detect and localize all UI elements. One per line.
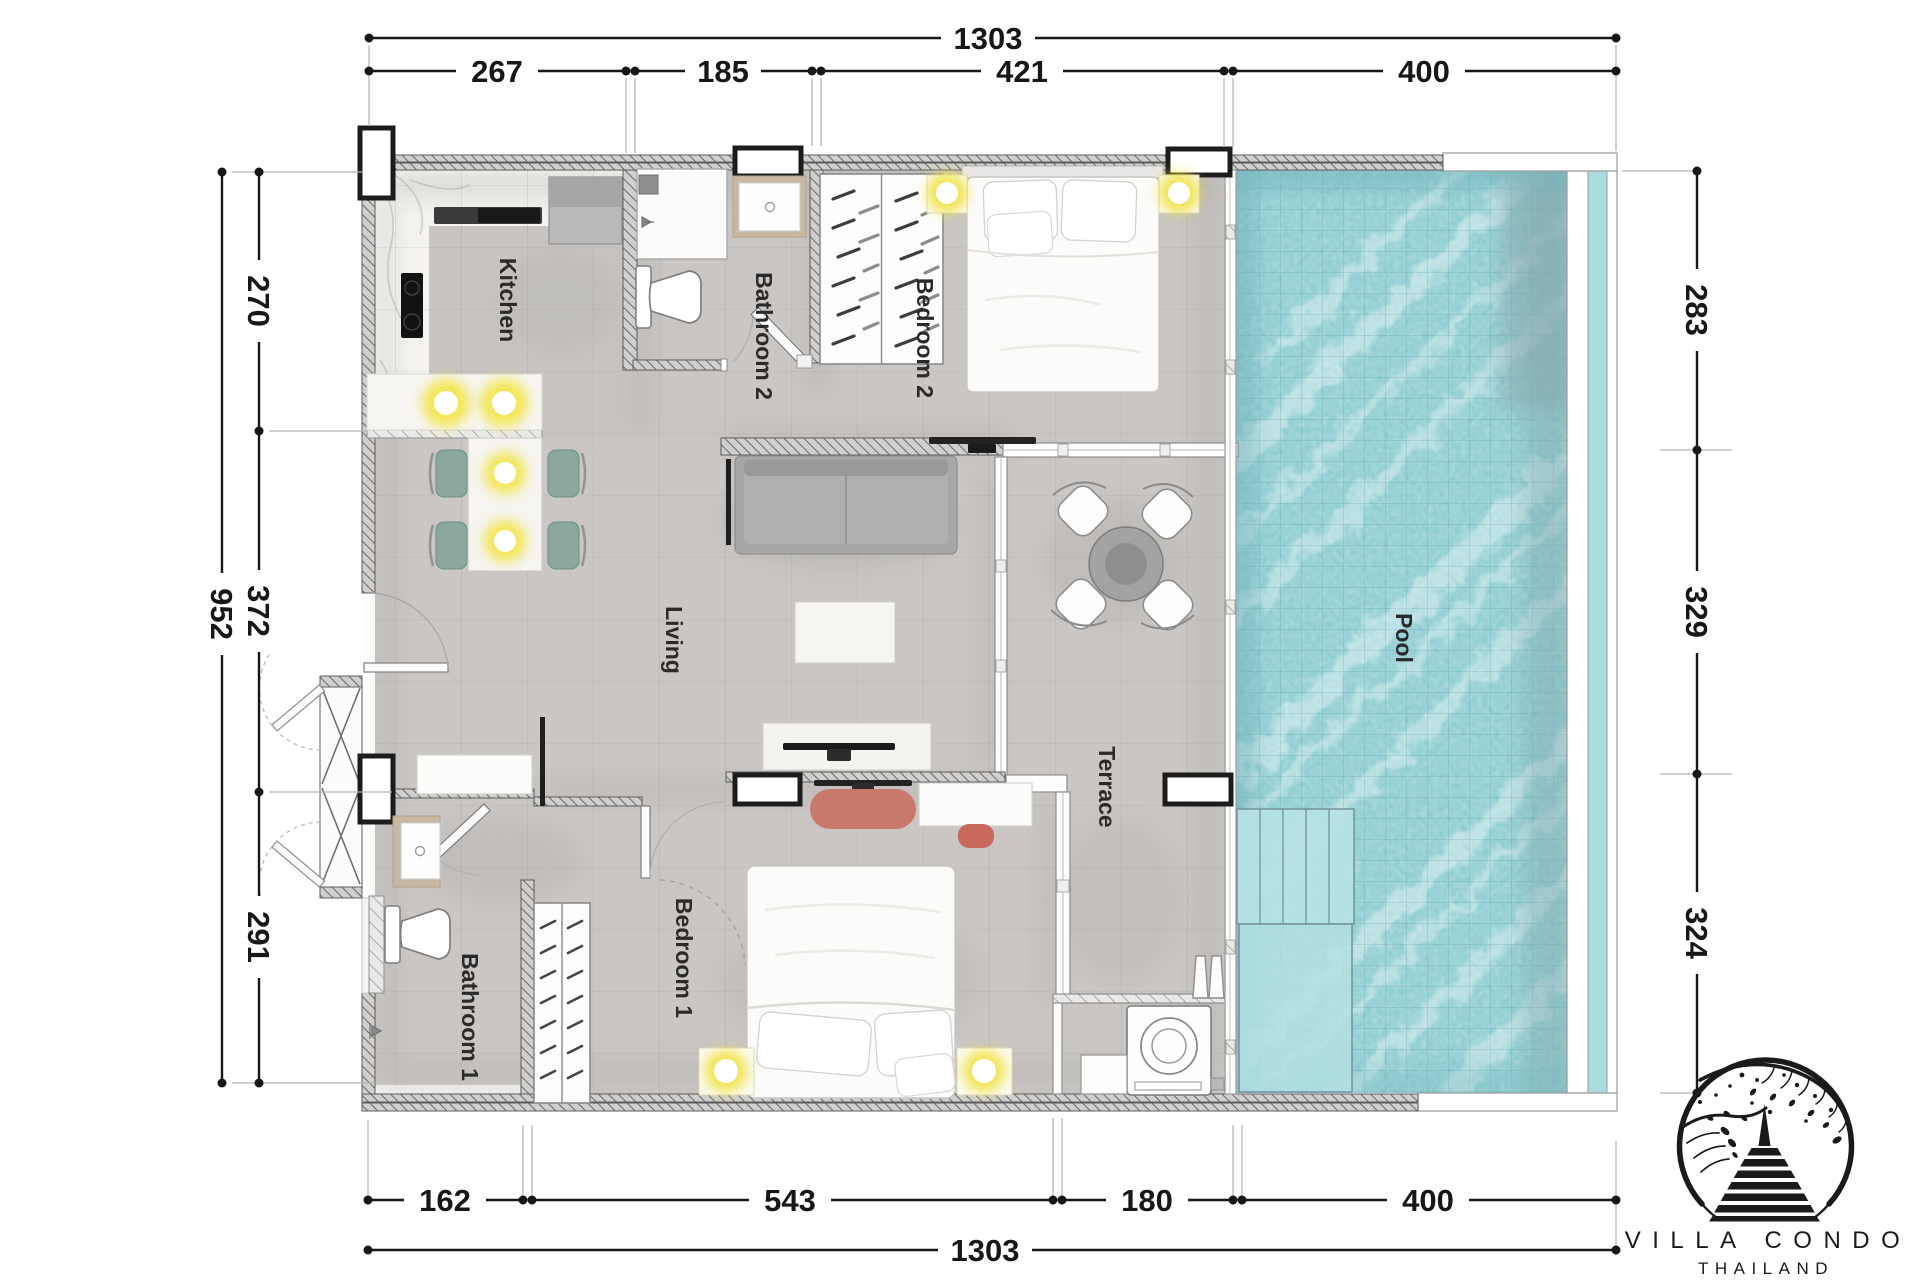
svg-text:270: 270 — [241, 275, 276, 327]
svg-text:1303: 1303 — [954, 21, 1023, 56]
svg-text:Bedroom 2: Bedroom 2 — [912, 278, 938, 398]
svg-text:283: 283 — [1679, 284, 1714, 336]
svg-text:Terrace: Terrace — [1094, 746, 1120, 827]
svg-text:162: 162 — [419, 1183, 471, 1218]
svg-text:543: 543 — [764, 1183, 816, 1218]
svg-text:Pool: Pool — [1391, 613, 1417, 663]
svg-text:329: 329 — [1679, 586, 1714, 638]
svg-text:VILLA CONDO: VILLA CONDO — [1625, 1227, 1912, 1254]
svg-text:291: 291 — [241, 911, 276, 963]
svg-text:Bathroom 1: Bathroom 1 — [457, 953, 483, 1081]
svg-text:Living: Living — [661, 606, 687, 674]
svg-text:952: 952 — [204, 588, 239, 640]
svg-text:324: 324 — [1679, 907, 1714, 959]
svg-text:Bedroom 1: Bedroom 1 — [671, 898, 697, 1018]
svg-text:400: 400 — [1402, 1183, 1454, 1218]
svg-text:Kitchen: Kitchen — [495, 258, 521, 342]
svg-text:421: 421 — [996, 54, 1048, 89]
svg-text:THAILAND: THAILAND — [1698, 1259, 1834, 1278]
svg-text:185: 185 — [697, 54, 749, 89]
svg-text:400: 400 — [1398, 54, 1450, 89]
svg-text:180: 180 — [1121, 1183, 1173, 1218]
svg-text:Bathroom 2: Bathroom 2 — [751, 272, 777, 400]
svg-text:267: 267 — [471, 54, 523, 89]
svg-text:1303: 1303 — [951, 1233, 1020, 1268]
svg-text:372: 372 — [241, 585, 276, 637]
